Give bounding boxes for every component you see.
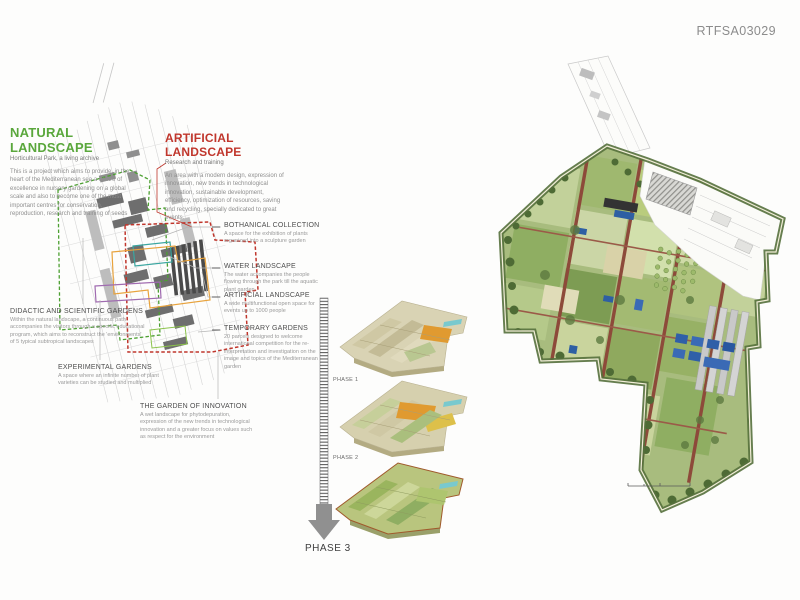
callout-body: 20 parcels designed to welcome internati… [224,334,328,371]
artificial-landscape-body: An area with a modern design, expression… [165,172,290,222]
phase1-plate [340,301,467,377]
phase2-label: PHASE 2 [333,455,358,461]
callout-body: A space where an infinite number of plan… [58,373,178,388]
callout-title: ARTIFICIAL LANDSCAPE [224,292,324,299]
master-plan [470,56,785,524]
callout-bothanical-collection: BOTHANICAL COLLECTION A space for the ex… [224,222,324,246]
phase3-plate [336,463,463,539]
phase1-label: PHASE 1 [333,377,358,383]
callout-title: EXPERIMENTAL GARDENS [58,364,178,371]
callout-body: A wet landscape for phytodepuration, exp… [140,412,255,442]
phase-arrow [308,504,340,540]
callout-garden-of-innovation: THE GARDEN OF INNOVATION A wet landscape… [140,403,255,442]
callout-body: The water accompanies the people flowing… [224,272,324,294]
artificial-landscape-title: ARTIFICIAL LANDSCAPE [165,131,290,159]
callout-experimental-gardens: EXPERIMENTAL GARDENS A space where an in… [58,364,178,388]
left-site-plan [20,45,258,414]
artificial-landscape-block: ARTIFICIAL LANDSCAPE Research and traini… [165,131,290,222]
callout-title: BOTHANICAL COLLECTION [224,222,324,229]
phase2-plate [340,381,467,457]
callout-title: TEMPORARY GARDENS [224,325,328,332]
callout-didactic-gardens: DIDACTIC AND SCIENTIFIC GARDENS Within t… [10,308,145,347]
presentation-board: RTFSA03029 NATURAL LANDSCAPE Horticultur… [0,0,800,600]
artificial-landscape-subtitle: Research and training [165,160,290,166]
callout-body: A space for the exhibition of plants org… [224,231,324,246]
callout-title: DIDACTIC AND SCIENTIFIC GARDENS [10,308,145,315]
board-graphics-svg [0,0,800,600]
natural-landscape-title: NATURAL LANDSCAPE [10,125,132,155]
callout-title: WATER LANDSCAPE [224,263,324,270]
callout-temporary-gardens: TEMPORARY GARDENS 20 parcels designed to… [224,325,328,371]
natural-landscape-subtitle: Horticultural Park, a living archive [10,156,132,162]
callout-artificial-landscape: ARTIFICIAL LANDSCAPE A wide multifunctio… [224,292,324,316]
callout-body: A wide multifunctional open space for ev… [224,301,324,316]
natural-landscape-block: NATURAL LANDSCAPE Horticultural Park, a … [10,125,132,218]
phasing-diagram [308,298,467,540]
callout-title: THE GARDEN OF INNOVATION [140,403,255,410]
callout-body: Within the natural landscape, a continuo… [10,317,145,347]
phase3-label: PHASE 3 [305,543,351,554]
callout-water-landscape: WATER LANDSCAPE The water accompanies th… [224,263,324,294]
access-road-arm [568,56,650,158]
natural-landscape-body: This is a project which aims to provide,… [10,168,132,218]
board-code: RTFSA03029 [696,24,776,38]
